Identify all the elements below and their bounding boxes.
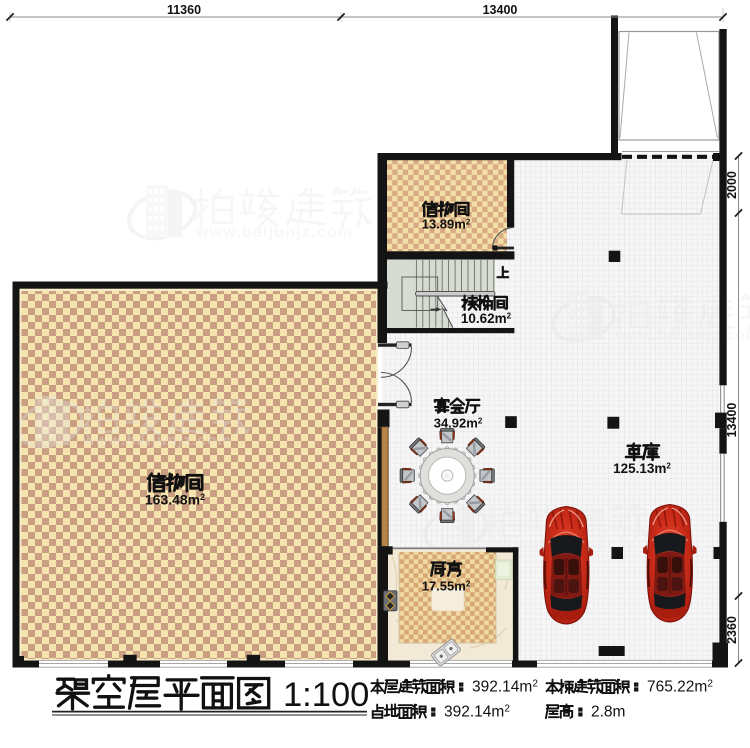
svg-text:17.55m2: 17.55m2 <box>422 579 471 594</box>
svg-text:392.14m2: 392.14m2 <box>472 679 538 696</box>
svg-text:www.baijunjz.com: www.baijunjz.com <box>195 224 353 241</box>
svg-text:11360: 11360 <box>167 3 201 17</box>
svg-text:163.48m2: 163.48m2 <box>145 491 205 507</box>
svg-text:2.8m: 2.8m <box>591 704 625 721</box>
svg-text:392.14m2: 392.14m2 <box>444 704 510 721</box>
svg-text:1:100: 1:100 <box>283 676 369 714</box>
svg-text:10.62m2: 10.62m2 <box>461 311 512 326</box>
svg-text:765.22m2: 765.22m2 <box>647 679 713 696</box>
svg-text:2000: 2000 <box>725 171 739 199</box>
svg-text:www.baijunjz.com: www.baijunjz.com <box>82 432 232 449</box>
svg-text:2360: 2360 <box>725 616 739 644</box>
svg-text:www.baijunjz.com: www.baijunjz.com <box>614 328 750 344</box>
svg-text:34.92m2: 34.92m2 <box>434 416 483 431</box>
svg-text:13400: 13400 <box>483 3 518 17</box>
svg-text:13.89m2: 13.89m2 <box>422 217 471 232</box>
svg-text:125.13m2: 125.13m2 <box>613 461 671 476</box>
svg-text:13400: 13400 <box>725 403 739 438</box>
